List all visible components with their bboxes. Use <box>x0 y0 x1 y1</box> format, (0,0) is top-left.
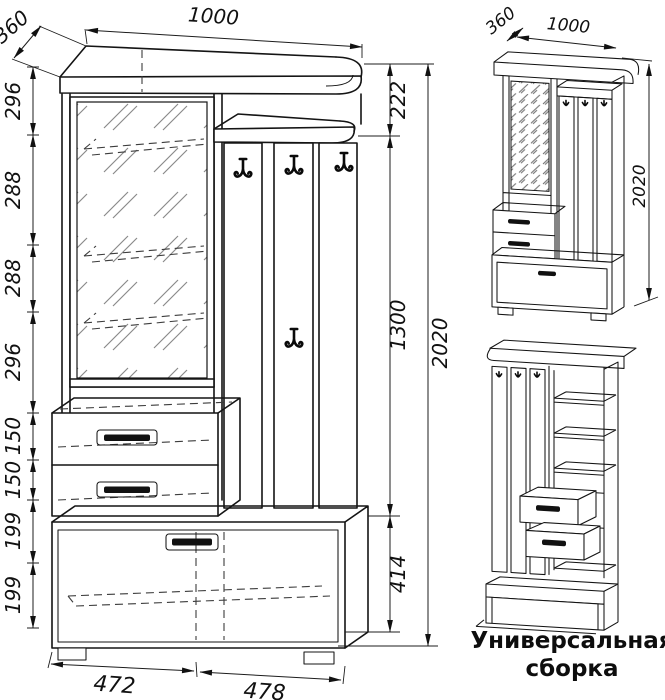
pulled-drawer <box>526 521 600 561</box>
dim-label-472: 472 <box>93 672 137 700</box>
dim-label-288-upper: 288 <box>1 171 25 209</box>
coat-hook-panel <box>214 114 357 508</box>
dim-label-150-upper: 150 <box>1 417 25 455</box>
dim-label-414: 414 <box>386 555 410 593</box>
dim-label-199-lower: 199 <box>1 576 25 614</box>
dim-label-478: 478 <box>243 679 287 700</box>
dim-label-222: 222 <box>386 81 410 119</box>
total-height-dimension: 2020 <box>428 64 452 646</box>
dim-label-depth: 360 <box>0 5 34 48</box>
caption-line-1: Универсальная <box>470 628 665 654</box>
mirror-panel <box>70 97 214 387</box>
dim-label-1300: 1300 <box>386 300 410 351</box>
dim-label-296-top: 296 <box>1 82 25 120</box>
caption-line-2: сборка <box>525 656 618 682</box>
dim-label-296-bottom: 296 <box>1 343 25 381</box>
pulled-drawer <box>520 486 596 527</box>
cabinet-foot <box>304 652 334 664</box>
dim-label-width: 1000 <box>187 2 239 29</box>
canopy-shelf <box>60 46 362 94</box>
drawer-unit <box>52 398 240 516</box>
dim-label-288-lower: 288 <box>1 259 25 297</box>
bottom-dimension-chain: 472 478 <box>48 652 345 700</box>
assembled-width-label: 1000 <box>546 14 591 38</box>
dim-label-total-height: 2020 <box>428 318 452 369</box>
dim-label-199-upper: 199 <box>1 512 25 550</box>
dim-label-150-lower: 150 <box>1 461 25 499</box>
top-dimension-depth: 360 <box>0 5 86 77</box>
assembled-3d-view: 360 1000 2020 <box>482 3 658 323</box>
universal-assembly-3d-view: Универсальная сборка <box>470 338 665 682</box>
left-dimension-chain: 296 288 288 296 150 150 199 199 <box>1 67 39 628</box>
cabinet-foot <box>58 648 86 660</box>
main-elevation-drawing: 296 288 288 296 150 150 199 199 1000 360… <box>0 2 452 700</box>
bottom-cabinet <box>52 506 368 664</box>
furniture-blueprint-page: 296 288 288 296 150 150 199 199 1000 360… <box>0 0 665 700</box>
technical-drawing-canvas: 296 288 288 296 150 150 199 199 1000 360… <box>0 0 665 700</box>
top-dimension-width: 1000 <box>85 2 362 58</box>
assembled-depth-label: 360 <box>482 3 520 39</box>
assembled-height-label: 2020 <box>630 164 650 207</box>
